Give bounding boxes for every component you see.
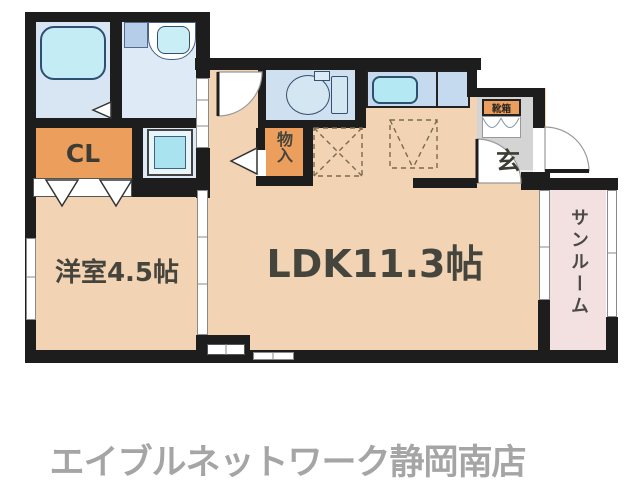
wall (545, 178, 618, 190)
toilet-tank (331, 76, 348, 114)
western-room-label: 洋室4.5帖 (38, 252, 196, 289)
washroom-sliding-door (196, 78, 209, 148)
shoebox-doors (482, 116, 521, 138)
closet-accordion-door (33, 178, 132, 197)
kitchen-counter-divider (436, 70, 438, 108)
wall (256, 128, 265, 150)
sunroom-label: サンルーム (565, 208, 591, 318)
wall (606, 317, 618, 363)
sunroom-door-window (539, 190, 550, 300)
wall (132, 128, 143, 178)
wall (256, 176, 313, 186)
washbasin (157, 26, 190, 54)
entry-door-opening (533, 128, 545, 172)
exterior-mask (477, 0, 640, 88)
western-room-sliding-door (197, 190, 208, 335)
wall (195, 58, 481, 70)
wall (25, 350, 618, 363)
wall (533, 88, 545, 128)
wall (25, 118, 205, 128)
wall (413, 178, 477, 188)
washing-machine (154, 136, 186, 169)
window-low-south (207, 344, 245, 355)
genkan-label: 玄 (494, 141, 522, 176)
wall (355, 58, 366, 128)
toilet-bowl (286, 75, 330, 115)
storage-door-opening (256, 150, 266, 176)
ldk-label: LDK11.3帖 (225, 233, 525, 288)
toilet-flush-box (314, 71, 330, 81)
window-west (26, 238, 36, 320)
sunroom-window-east (607, 190, 617, 317)
bathtub (40, 26, 106, 80)
wall (25, 12, 210, 22)
wall (110, 22, 122, 128)
store-name: エイブルネットワーク静岡南店 (20, 434, 555, 480)
kitchen-sink (372, 76, 418, 104)
window-south (253, 352, 294, 360)
shoebox-label: 靴箱 (482, 101, 521, 115)
floorplan: CL 洋室4.5帖 LDK11.3帖 物入 玄 靴箱 サンルーム エイブルネット… (0, 0, 640, 480)
wall (258, 120, 366, 128)
washroom-shelf (124, 22, 148, 48)
exterior-mask (546, 88, 640, 178)
closet-label: CL (38, 139, 128, 168)
wall (538, 300, 550, 352)
storage-label: 物入 (274, 131, 293, 163)
